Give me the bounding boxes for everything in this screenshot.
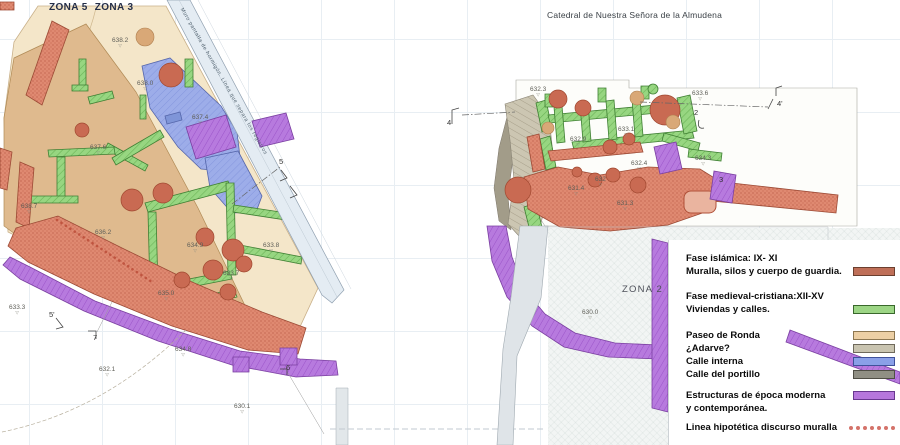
legend-item-text: ¿Adarve? — [686, 342, 849, 355]
legend-color-swatch — [853, 331, 895, 340]
tan-silo — [136, 28, 154, 46]
legend-item: Fase islámica: IX- XIMuralla, silos y cu… — [686, 252, 897, 278]
modern-structure-on-band — [252, 113, 294, 147]
legend-dot — [891, 426, 895, 430]
legend-item-text: Calle del portillo — [686, 368, 849, 381]
legend-color-swatch — [853, 370, 895, 379]
legend-item-text: Linea hipotética discurso muralla — [686, 421, 845, 434]
legend-item-text: Paseo de Ronda — [686, 329, 849, 342]
legend-color-swatch — [853, 305, 895, 314]
legend-item: Linea hipotética discurso muralla — [686, 421, 897, 434]
legend-item-line: Calle del portillo — [686, 368, 849, 381]
legend-color-swatch — [853, 357, 895, 366]
legend-item: Paseo de Ronda — [686, 329, 897, 342]
legend-dot — [856, 426, 860, 430]
legend-item: ¿Adarve? — [686, 342, 897, 355]
legend-item-line: Fase medieval-cristiana:XII-XV — [686, 290, 849, 303]
legend-item: Fase medieval-cristiana:XII-XVViviendas … — [686, 290, 897, 316]
legend-item-line: Fase islámica: IX- XI — [686, 252, 849, 265]
legend-item: Calle interna — [686, 355, 897, 368]
legend-item: Calle del portillo — [686, 368, 897, 381]
site-plan-canvas: ZONA 5ZONA 3 Catedral de Nuestra Señora … — [0, 0, 900, 445]
legend-item-line: Linea hipotética discurso muralla — [686, 421, 845, 434]
legend-dot — [863, 426, 867, 430]
contour-line — [2, 330, 186, 432]
legend-item-line: Estructuras de época moderna — [686, 389, 849, 402]
legend-dotted-line-sample — [849, 426, 895, 430]
legend-color-swatch — [853, 344, 895, 353]
legend-dot — [849, 426, 853, 430]
gray-wall-segment — [336, 388, 348, 445]
legend-item-text: Estructuras de época modernay contemporá… — [686, 389, 849, 415]
legend: Fase islámica: IX- XIMuralla, silos y cu… — [668, 240, 900, 445]
legend-dot — [884, 426, 888, 430]
legend-color-swatch — [853, 391, 895, 400]
legend-dot — [877, 426, 881, 430]
legend-item-line: y contemporánea. — [686, 402, 849, 415]
legend-color-swatch — [853, 267, 895, 276]
legend-item-text: Fase islámica: IX- XIMuralla, silos y cu… — [686, 252, 849, 278]
legend-item-line: Paseo de Ronda — [686, 329, 849, 342]
legend-item-line: Calle interna — [686, 355, 849, 368]
legend-dot — [870, 426, 874, 430]
legend-item-line: Viviendas y calles. — [686, 303, 849, 316]
legend-item-line: Muralla, silos y cuerpo de guardia. — [686, 265, 849, 278]
legend-item-line: ¿Adarve? — [686, 342, 849, 355]
legend-item-text: Calle interna — [686, 355, 849, 368]
legend-item-text: Fase medieval-cristiana:XII-XVViviendas … — [686, 290, 849, 316]
left-site-plan — [0, 0, 545, 445]
legend-item: Estructuras de época modernay contemporá… — [686, 389, 897, 415]
